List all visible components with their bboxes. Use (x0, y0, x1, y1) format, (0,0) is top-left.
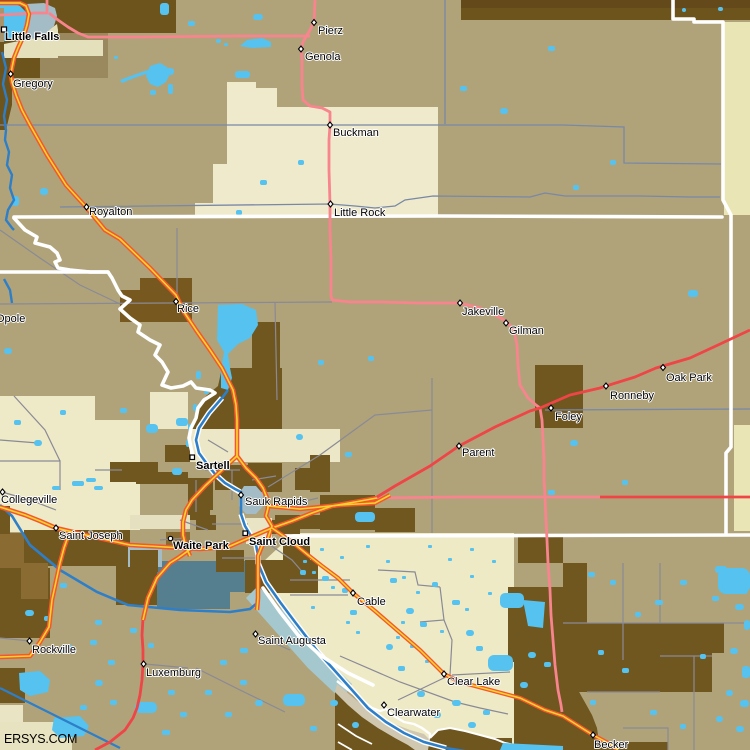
svg-text:Waite Park: Waite Park (173, 540, 230, 552)
svg-text:Buckman: Buckman (333, 127, 379, 139)
svg-text:Saint Augusta: Saint Augusta (258, 635, 327, 647)
svg-text:ERSYS.COM: ERSYS.COM (4, 732, 77, 746)
svg-text:Luxemburg: Luxemburg (146, 667, 201, 679)
svg-text:Jakeville: Jakeville (462, 306, 504, 318)
svg-text:Little Rock: Little Rock (334, 207, 386, 219)
svg-text:Cable: Cable (357, 596, 386, 608)
svg-text:Clearwater: Clearwater (387, 707, 441, 719)
svg-text:Collegeville: Collegeville (1, 494, 57, 506)
svg-text:Rockville: Rockville (32, 644, 76, 656)
svg-text:Royalton: Royalton (89, 206, 132, 218)
svg-text:Becker: Becker (594, 739, 629, 750)
svg-text:Gilman: Gilman (509, 325, 544, 337)
svg-text:Foley: Foley (555, 411, 582, 423)
svg-text:Saint Joseph: Saint Joseph (59, 530, 123, 542)
svg-text:Parent: Parent (462, 447, 494, 459)
svg-text:Ronneby: Ronneby (610, 390, 655, 402)
svg-text:Rice: Rice (177, 303, 199, 315)
svg-text:Opole: Opole (0, 313, 25, 325)
svg-text:Gregory: Gregory (13, 78, 53, 90)
svg-text:Little Falls: Little Falls (5, 31, 59, 43)
svg-text:Clear Lake: Clear Lake (447, 676, 500, 688)
svg-text:Genola: Genola (305, 51, 341, 63)
svg-text:Oak Park: Oak Park (666, 372, 712, 384)
svg-text:Pierz: Pierz (318, 25, 343, 37)
svg-text:Sartell: Sartell (196, 460, 230, 472)
svg-text:Sauk Rapids: Sauk Rapids (245, 496, 308, 508)
svg-text:Saint Cloud: Saint Cloud (249, 536, 310, 548)
